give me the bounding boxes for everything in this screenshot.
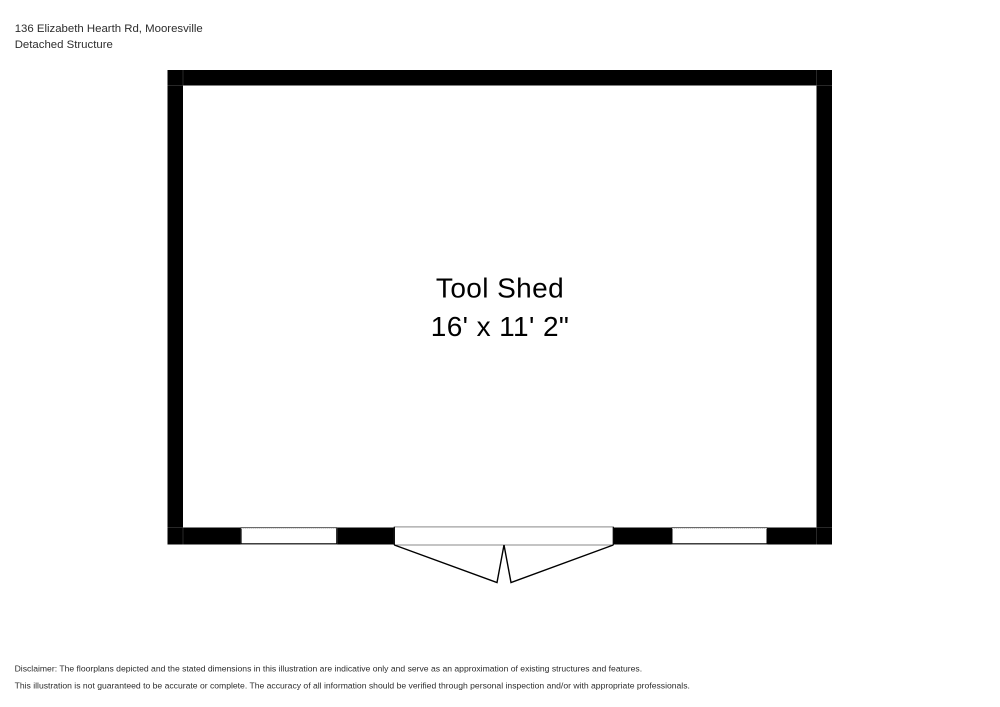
svg-text:Detached Structure: Detached Structure (15, 39, 113, 51)
svg-text:136 Elizabeth Hearth Rd, Moore: 136 Elizabeth Hearth Rd, Mooresville (15, 23, 203, 35)
svg-text:This illustration is not guara: This illustration is not guaranteed to b… (15, 681, 690, 691)
svg-text:Tool Shed: Tool Shed (436, 272, 564, 303)
svg-text:Disclaimer: The floorplans dep: Disclaimer: The floorplans depicted and … (15, 663, 643, 673)
svg-text:16' x 11' 2": 16' x 11' 2" (431, 311, 570, 342)
